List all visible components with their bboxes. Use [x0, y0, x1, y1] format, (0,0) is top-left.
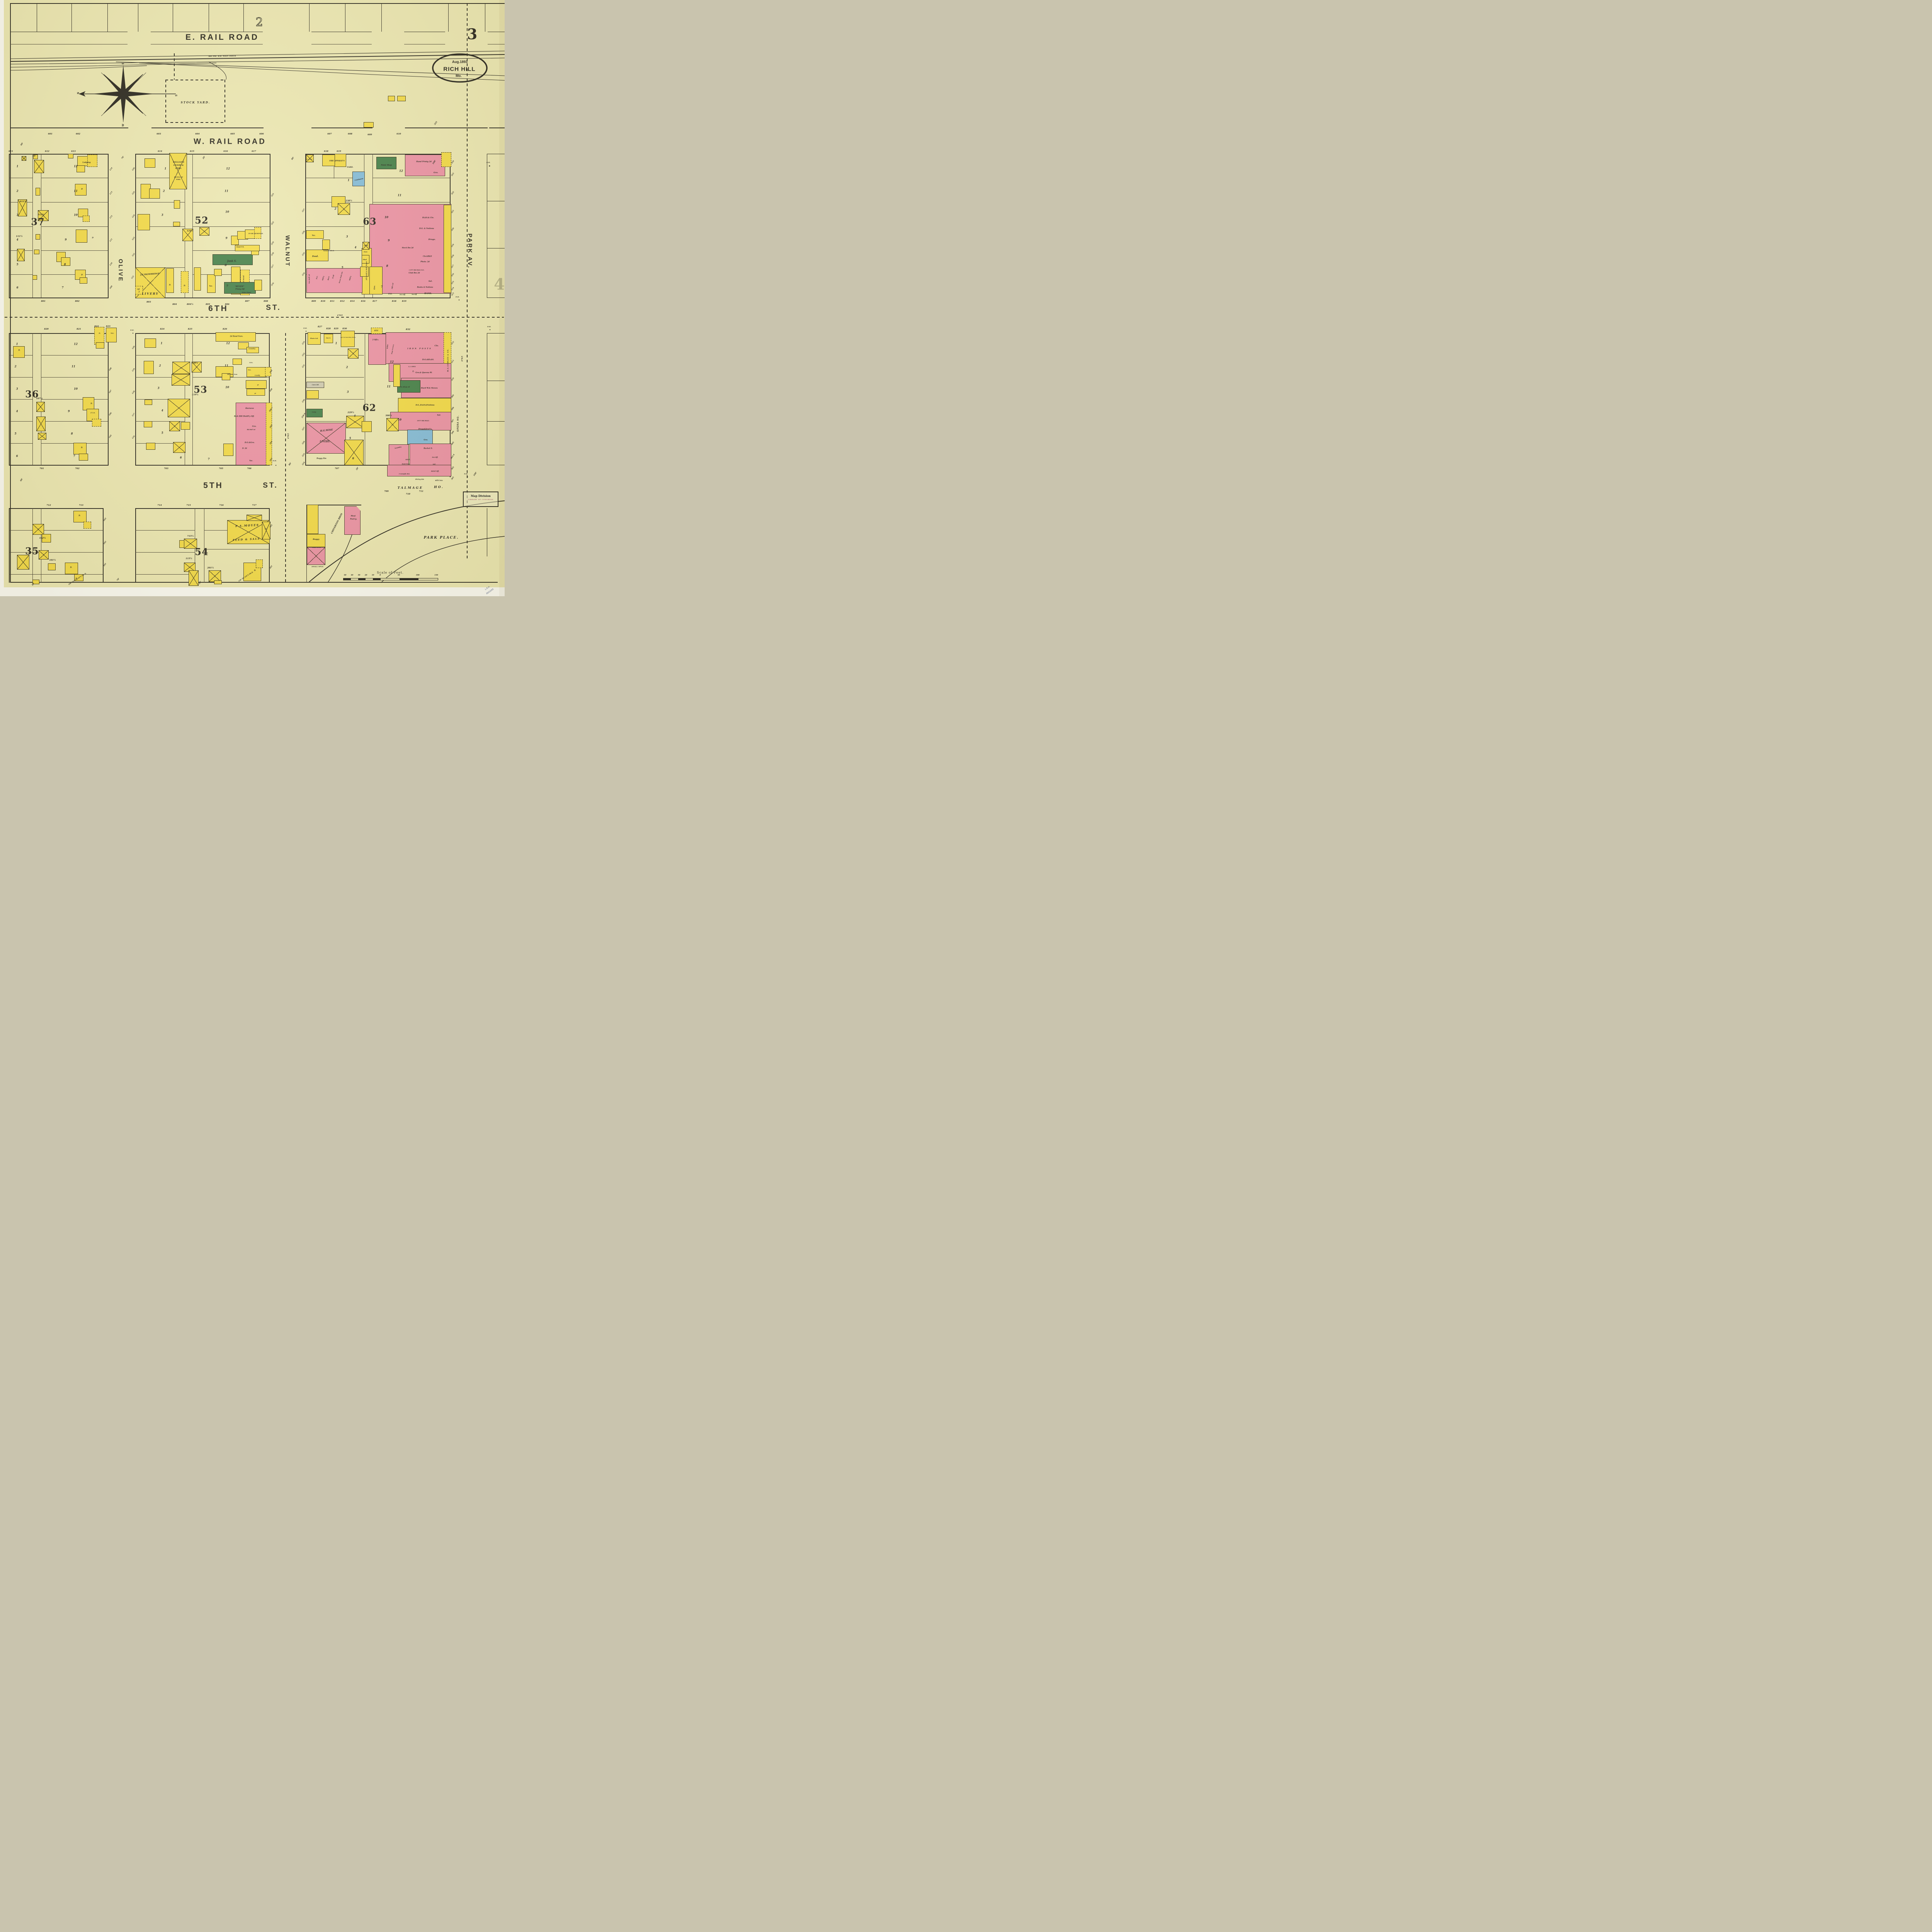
building-label: Hotel Off. — [431, 470, 439, 472]
building-label: SMALL OPGS. — [311, 566, 323, 568]
map-number: 4 — [355, 246, 357, 249]
building — [306, 409, 323, 417]
building-label: 2 — [138, 291, 139, 293]
map-number: 716 — [219, 504, 223, 507]
park-place-label: PARK PLACE. — [424, 536, 459, 540]
street-name: W. RAIL ROAD — [194, 138, 266, 146]
building-label: 2 Off's. — [372, 339, 379, 341]
hotel-name: HO. — [434, 485, 444, 489]
building — [181, 271, 189, 293]
building — [138, 214, 150, 230]
map-number: 816 — [361, 300, 365, 303]
map-number: 820 — [44, 328, 48, 330]
building-label: D. 2d — [242, 447, 247, 449]
building-label: D. — [99, 332, 101, 334]
map-number: 829 — [334, 328, 338, 330]
building — [376, 157, 396, 169]
building — [83, 522, 91, 529]
building-label: Hand Printg 2d — [416, 161, 432, 163]
building — [348, 349, 359, 359]
building — [362, 421, 372, 432]
map-number: 710 — [406, 493, 410, 495]
building — [306, 423, 346, 454]
map-number: 2 — [15, 365, 17, 368]
map-number: 11 — [224, 364, 228, 367]
building-label: Water Power — [242, 292, 251, 293]
building-label: 1.2. OPEN — [408, 366, 415, 367]
title-text: Aug.1893 — [452, 60, 468, 64]
stamp-line2: LIBRARY OF CONGRESS — [464, 499, 498, 500]
map-number: 9 — [388, 239, 390, 242]
building — [166, 268, 174, 293]
building — [168, 399, 190, 417]
building-label: Off — [137, 288, 139, 290]
building — [441, 152, 451, 167]
building-label: D. — [81, 447, 83, 449]
map-number: 832 — [406, 328, 410, 331]
map-number: 8 — [225, 264, 227, 267]
map-number: 12 — [74, 342, 78, 346]
building-label: 1ST'Y BK.WALL — [417, 420, 429, 422]
map-number: 10 — [225, 210, 229, 214]
scale-tick-label: 0 — [379, 575, 381, 577]
building — [405, 155, 445, 176]
building — [144, 421, 152, 427]
building-label: Sal. — [433, 463, 436, 465]
building — [36, 417, 46, 431]
map-number: 8 — [64, 263, 66, 266]
map-number: 830 — [342, 328, 347, 330]
building-label: Sal. — [437, 415, 441, 417]
map-number: 809 — [311, 300, 316, 303]
building-label: Gro. — [252, 426, 257, 428]
building — [172, 362, 190, 374]
building — [199, 227, 209, 236]
map-number: 824 — [160, 328, 164, 330]
building-label: Meat — [351, 515, 356, 517]
map-number: 7 — [73, 454, 75, 458]
map-number: 606 — [259, 133, 264, 135]
building-label: Candy — [255, 374, 260, 376]
map-number: ● — [490, 329, 491, 330]
building-label: Junk S. — [227, 260, 236, 263]
map-number: 9 — [226, 236, 228, 240]
building — [96, 342, 104, 349]
map-number: 818 — [392, 300, 396, 303]
building-label: Hotel Rms — [402, 463, 410, 465]
building — [266, 403, 272, 465]
map-number: 715 — [186, 504, 190, 507]
map-number: 12 — [226, 342, 230, 345]
map-number: 6"W.P. — [337, 315, 343, 316]
building-label: D' — [255, 393, 257, 395]
building-label: Buggy — [313, 538, 319, 541]
map-number: 827 — [318, 326, 322, 328]
map-number: 6 — [180, 456, 182, 459]
map-number: ● — [467, 476, 468, 478]
scale-tick-label: 100 — [416, 575, 419, 577]
building-label: SMALL OP'GS — [312, 547, 321, 548]
map-number: 2 — [17, 189, 19, 193]
map-number: 1 — [335, 342, 337, 345]
building — [34, 250, 39, 254]
map-number: 101½ — [49, 559, 56, 561]
building-label: D.G.&Gro. — [245, 442, 255, 444]
scale-title: Scale of Feet. — [377, 571, 403, 575]
map-number: 701 — [39, 468, 44, 470]
map-number: 702 — [75, 468, 79, 470]
building-label: Summer Kitch. — [323, 250, 335, 252]
building — [169, 421, 180, 431]
building — [34, 160, 44, 173]
map-number: 5 — [162, 431, 163, 435]
map-number: 10 — [398, 418, 401, 422]
building — [145, 400, 152, 405]
building — [341, 331, 355, 347]
building-label: Laundry — [248, 348, 255, 350]
building — [247, 515, 262, 521]
map-number: D.H. — [303, 327, 307, 329]
map-number: 111½ — [16, 235, 22, 238]
map-number: 826 — [223, 328, 227, 330]
building — [223, 444, 233, 456]
hotel-name: TALMAGE — [398, 486, 423, 490]
building-label: Fur S. — [326, 337, 331, 339]
map-number: 4 — [354, 414, 356, 418]
map-number: ● — [459, 299, 460, 301]
map-number: 4 — [162, 409, 163, 412]
map-number: 808 — [264, 300, 268, 303]
stamp-line1: Map Division — [464, 494, 498, 498]
scale-tick-label: 150 — [434, 575, 438, 577]
scale-tick-label: 50 — [398, 575, 400, 577]
map-number: 7 — [226, 284, 228, 288]
map-number: 1 — [17, 165, 19, 168]
building — [32, 524, 44, 535]
scale-tick-label: 20 — [365, 575, 367, 577]
map-number: 801 — [41, 300, 45, 303]
building — [36, 188, 40, 196]
building-label: Pack'g. — [350, 519, 357, 520]
map-number: 713 — [79, 504, 83, 507]
building — [73, 511, 87, 522]
map-number: 1 — [165, 167, 167, 170]
building-label: BANK. — [424, 293, 432, 295]
building — [306, 268, 362, 293]
building-label: Gro.& Queens W. — [415, 372, 432, 374]
building — [87, 155, 97, 167]
title-text: S — [175, 95, 178, 97]
building-label: Drugs. — [429, 238, 436, 241]
map-number: 714 — [157, 504, 162, 507]
block-number: 62 — [362, 402, 376, 413]
building — [214, 269, 222, 276]
building — [207, 274, 216, 293]
map-number: 10 — [384, 216, 388, 219]
building-label: TO BE REMOVED. — [248, 233, 264, 235]
map-number: 112½ — [37, 214, 44, 216]
building — [36, 402, 45, 412]
map-number: 4 — [17, 238, 19, 241]
map-number: ● — [489, 165, 490, 167]
building-label: D — [81, 189, 83, 190]
map-number: 10 — [74, 213, 78, 217]
map-number: 3 — [16, 387, 18, 391]
building-label: Shed — [364, 245, 368, 247]
scale-bar — [343, 578, 438, 580]
map-number: 20 — [33, 155, 36, 157]
map-number: 3 — [347, 390, 349, 394]
building-label: Vac.Hall 2d — [308, 274, 310, 284]
map-number: 9 — [65, 238, 67, 241]
map-number: 3 — [17, 213, 19, 217]
map-number: 3 — [158, 386, 160, 390]
map-number: 610 — [396, 133, 401, 135]
building-label: WILLIAMS — [173, 161, 184, 163]
building-label: 1 ST'Y BK.WALL D.G. — [409, 269, 424, 271]
map-number: 821 — [77, 328, 81, 330]
building — [307, 505, 318, 534]
street-name-vertical: WALNUT — [284, 235, 291, 267]
building-label: 1½ D. — [90, 412, 95, 414]
building-label: LIVERY. — [320, 440, 330, 443]
building-label: Agr'l & Seed Hay W.Ho. — [340, 337, 356, 338]
building-label: D. — [79, 515, 81, 517]
building — [146, 443, 155, 450]
map-number: 10 — [74, 387, 78, 391]
map-number: 601 — [48, 133, 52, 135]
building-label: Corn Crib — [312, 384, 318, 386]
street-name: 5TH — [203, 481, 223, 490]
building — [145, 158, 155, 168]
building — [214, 580, 222, 584]
building-label: Racket S. — [423, 448, 432, 450]
building — [65, 563, 78, 574]
map-number: D.H. — [486, 162, 490, 163]
building-label: 3 Sample Rm — [399, 473, 410, 475]
building-label: Gro. — [424, 439, 428, 441]
map-number: 102½ — [39, 537, 46, 539]
building-label: D.G.&B.&S. — [422, 359, 434, 361]
map-number: 802 — [75, 300, 79, 303]
map-number: 11 — [74, 189, 78, 193]
map-number: 6"W.P. — [287, 433, 289, 439]
scale-tick-label: 10 — [372, 575, 374, 577]
building-label: Buggy Rm — [316, 458, 326, 460]
adjacent-sheet-number: 4 — [494, 276, 505, 294]
building — [38, 433, 46, 440]
map-number: 120½ — [191, 362, 198, 364]
map-number: 604 — [195, 133, 199, 135]
building-label: Club Rm 2d — [409, 272, 420, 274]
map-number: 608 — [348, 133, 352, 135]
map-number: 616 — [223, 150, 228, 153]
map-number: 609 — [367, 134, 372, 136]
map-number: 7 — [208, 457, 210, 461]
building — [39, 550, 49, 560]
building-label: 2d Hand & Wall Paper. — [366, 261, 367, 281]
building — [233, 359, 242, 365]
title-text: N — [77, 92, 80, 94]
map-number: 617 — [252, 150, 256, 153]
map-number: 8 — [71, 432, 73, 435]
building — [360, 267, 369, 277]
building-label: Vac. — [111, 332, 114, 334]
building-label: LIVERY & — [173, 164, 184, 167]
building-label: Oven — [364, 251, 367, 253]
map-number: 3 — [346, 235, 348, 238]
building — [76, 230, 87, 243]
block-number: 37 — [31, 216, 44, 228]
building — [36, 234, 40, 240]
map-number: 5 — [17, 263, 19, 266]
map-number: 5 — [349, 437, 351, 440]
building-label: Bill'd Rm — [435, 480, 443, 481]
building-label: Ins.Off. — [400, 294, 406, 296]
building — [172, 374, 190, 386]
map-number: D.H. — [273, 460, 277, 462]
map-number: 115½ — [185, 558, 192, 560]
scale-tick-label: 40 — [351, 575, 353, 577]
map-number: 711 — [419, 490, 423, 493]
building — [174, 200, 180, 209]
building-label: E. — [413, 371, 415, 372]
building-label: “REVIEW” — [235, 286, 245, 287]
map-number: 2 — [159, 364, 161, 367]
map-number: 822 — [94, 325, 99, 328]
building-label: D.G. & Notions — [419, 228, 434, 230]
map-number: 812 — [340, 300, 344, 303]
building-label: Stock Rm 2d — [402, 247, 413, 249]
building-label: P.O. — [388, 293, 392, 295]
building — [80, 277, 87, 284]
building — [149, 189, 160, 199]
building — [77, 165, 85, 172]
building-name-vertical: M.S.COWLES & CO. — [447, 349, 449, 372]
street-name-vertical: OLIVE — [117, 259, 124, 282]
building-label: Feed. — [312, 255, 318, 258]
map-number: 619 — [337, 150, 341, 153]
building-label: Tin Shop 2d — [399, 386, 410, 388]
building-label: D.G.,B.&S.&Notions — [416, 405, 435, 406]
title-text: E — [122, 63, 125, 65]
map-number: 602 — [76, 133, 80, 135]
map-number: 201½ — [207, 567, 214, 569]
block-number: 54 — [195, 546, 208, 558]
map-number: 613 — [71, 150, 75, 153]
map-number: 11 — [398, 194, 401, 197]
building — [169, 153, 187, 189]
building — [17, 555, 29, 570]
building-label: Vac. — [209, 285, 213, 287]
building-label: Rich Hill Distill'y Off. — [234, 416, 255, 418]
map-number: 10 — [225, 386, 229, 389]
building-label: Old Bake Oven — [227, 374, 237, 375]
building-label: D. — [169, 284, 171, 286]
map-number: 4 — [16, 410, 18, 413]
building-label: Clo. — [435, 345, 439, 347]
building-label: Gen'l S. — [236, 247, 244, 248]
map-number: 709 — [384, 490, 388, 493]
map-number: 11 — [387, 385, 391, 388]
building-label: Drugs&Jew'l'y — [418, 429, 432, 430]
building — [338, 203, 350, 215]
block-number: 35 — [25, 546, 39, 557]
map-number: 703 — [164, 468, 168, 470]
map-number: ● — [276, 464, 277, 466]
building — [386, 418, 399, 431]
map-number: 618 — [324, 150, 328, 153]
block-number: 63 — [363, 216, 376, 227]
building-label: Paint Shop — [381, 165, 392, 167]
map-number: 614 — [158, 150, 162, 153]
map-number: 612 — [45, 150, 49, 153]
title-text: W — [122, 124, 125, 127]
map-number: 707 — [335, 468, 339, 470]
map-number: 823 — [106, 325, 110, 328]
building-label: Bell Tower — [306, 158, 313, 160]
map-number: 5 — [15, 432, 17, 435]
map-number: 238½ — [345, 200, 352, 202]
map-number: 229½ — [347, 412, 354, 414]
map-number: D.H. — [464, 473, 468, 475]
building-label: Dining Rm — [415, 478, 424, 480]
building-label: Photo Gal. — [310, 338, 318, 339]
map-number: 825 — [188, 328, 192, 330]
map-number: 615 — [190, 150, 194, 153]
building-label: Hard W.& Stoves — [421, 388, 437, 389]
map-number: 124½ — [187, 230, 193, 232]
block-number: 52 — [195, 215, 208, 226]
building — [189, 570, 199, 586]
building — [194, 267, 201, 291]
building — [145, 338, 156, 348]
map-number: D.H. — [456, 296, 459, 298]
building — [92, 419, 101, 427]
scale-tick-label: 30 — [358, 575, 360, 577]
building-label: Ins.Off. — [432, 456, 438, 458]
building-label: 2d Hand. — [243, 275, 245, 283]
map-number: 12 — [74, 165, 78, 168]
building-label: Ins.Off — [412, 294, 417, 295]
building-label: D' — [257, 384, 259, 386]
building — [388, 96, 395, 101]
map-number: 611 — [9, 150, 13, 153]
building-label: D. — [70, 566, 72, 568]
map-number: 5 — [342, 266, 344, 269]
map-number: 1 — [161, 342, 163, 345]
map-number: 1 — [16, 342, 18, 346]
map-number: 817 — [372, 300, 377, 303]
map-number: 8 — [386, 264, 388, 268]
street-name: 6TH — [208, 304, 228, 313]
building — [393, 364, 400, 387]
map-number: 828 — [326, 328, 330, 330]
map-number: 705 — [219, 468, 223, 470]
building-label: 1½ — [265, 528, 267, 530]
map-number: 717 — [252, 504, 256, 507]
building — [48, 563, 56, 570]
building-label: D. — [254, 570, 256, 572]
building — [181, 422, 190, 430]
street-name: ST. — [266, 304, 281, 312]
building — [387, 465, 451, 476]
building — [344, 440, 364, 465]
map-number: ● — [133, 332, 134, 334]
building-name: IRON POSTS — [407, 348, 432, 350]
sheet-number: 3 — [467, 26, 477, 43]
map-number: 803 — [146, 301, 151, 303]
